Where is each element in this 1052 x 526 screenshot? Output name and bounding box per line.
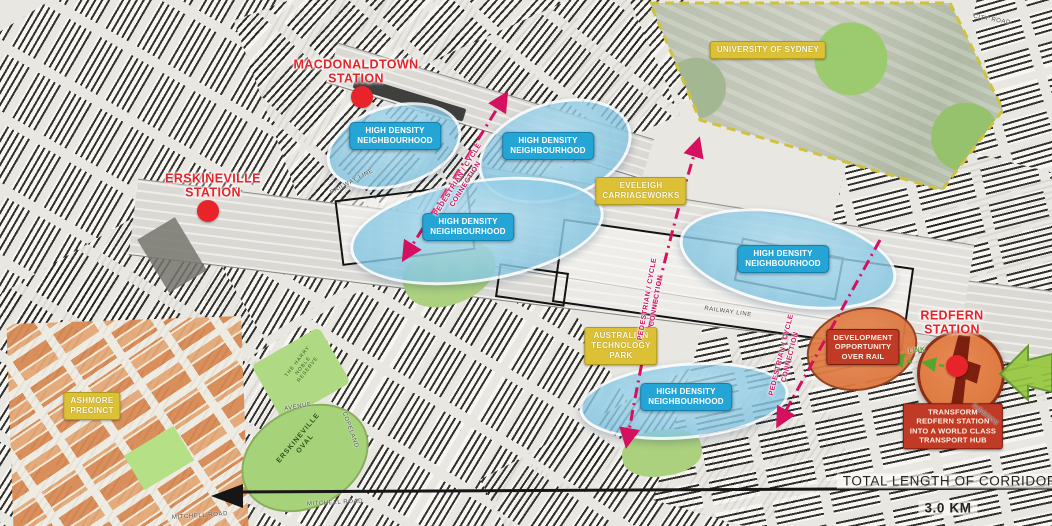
station-label-line: STATION [920, 323, 983, 337]
high-density-label: HIGH DENSITY NEIGHBOURHOOD [422, 213, 514, 241]
label-line: PARK [591, 351, 650, 361]
label-line: UNIVERSITY OF SYDNEY [717, 45, 819, 55]
erskineville-station-dot [197, 200, 219, 222]
label-line: NEIGHBOURHOOD [510, 146, 586, 156]
development-opportunity-label: DEVELOPMENT OPPORTUNITY OVER RAIL [826, 329, 899, 365]
station-label-line: REDFERN [920, 309, 983, 323]
redfern-station-dot [946, 355, 968, 377]
label-line: TECHNOLOGY [591, 341, 650, 351]
corridor-length-label: TOTAL LENGTH OF CORRIDOR [837, 474, 1052, 489]
redfern-station-label: REDFERN STATION [920, 309, 983, 338]
label-line: HIGH DENSITY [510, 136, 586, 146]
transform-redfern-label: TRANSFORM REDFERN STATION INTO A WORLD C… [903, 403, 1003, 449]
high-density-label: HIGH DENSITY NEIGHBOURHOOD [502, 132, 594, 160]
macdonaldtown-station-label: MACDONALDTOWN STATION [293, 58, 418, 87]
masterplan-map: MACDONALDTOWN STATION ERSKINEVILLE STATI… [0, 0, 1052, 526]
ashmore-precinct-blocks [6, 316, 248, 526]
station-label-line: MACDONALDTOWN [293, 58, 418, 72]
station-label-line: STATION [293, 72, 418, 86]
station-label-line: STATION [165, 186, 261, 200]
label-line: PRECINCT [70, 406, 113, 416]
corridor-length-value: 3.0 KM [918, 501, 977, 516]
ashmore-precinct-label: ASHMORE PRECINCT [63, 392, 120, 420]
label-line: NEIGHBOURHOOD [430, 227, 506, 237]
macdonaldtown-station-dot [351, 86, 373, 108]
high-density-label: HIGH DENSITY NEIGHBOURHOOD [349, 122, 441, 150]
label-line: 3.0 KM [924, 501, 971, 516]
label-line: LINK [908, 346, 925, 355]
label-line: EVELEIGH [602, 181, 679, 191]
label-line: HIGH DENSITY [648, 387, 724, 397]
label-line: NEIGHBOURHOOD [357, 136, 433, 146]
label-line: INTO A WORLD CLASS [910, 426, 996, 435]
label-line: TRANSPORT HUB [910, 435, 996, 444]
label-line: DEVELOPMENT [833, 333, 892, 342]
label-line: HIGH DENSITY [745, 249, 821, 259]
erskineville-station-label: ERSKINEVILLE STATION [165, 172, 261, 201]
station-label-line: ERSKINEVILLE [165, 172, 261, 186]
label-line: NEIGHBOURHOOD [745, 259, 821, 269]
label-line: NEIGHBOURHOOD [648, 397, 724, 407]
high-density-label: HIGH DENSITY NEIGHBOURHOOD [640, 383, 732, 411]
label-line: OVER RAIL [833, 352, 892, 361]
label-line: HIGH DENSITY [357, 126, 433, 136]
label-line: TOTAL LENGTH OF CORRIDOR [843, 474, 1052, 489]
university-aerial-photo [640, 0, 1010, 196]
label-line: CARRIAGEWORKS [602, 191, 679, 201]
eveleigh-carriageworks-label: EVELEIGH CARRIAGEWORKS [595, 177, 686, 205]
link-label: LINK [908, 346, 926, 356]
high-density-label: HIGH DENSITY NEIGHBOURHOOD [737, 245, 829, 273]
label-line: ASHMORE [70, 396, 113, 406]
label-line: OPPORTUNITY [833, 342, 892, 351]
university-label: UNIVERSITY OF SYDNEY [710, 41, 826, 59]
